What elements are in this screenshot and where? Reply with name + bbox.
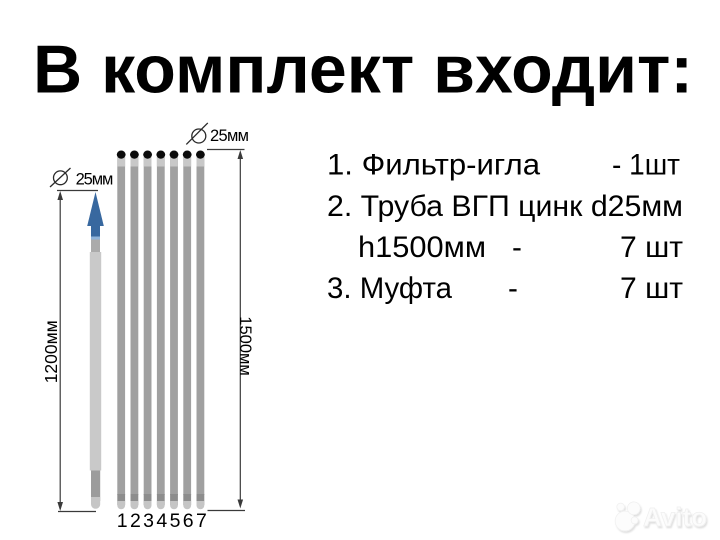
svg-text:7: 7 — [196, 510, 207, 532]
svg-text:25мм: 25мм — [210, 127, 249, 145]
svg-text:3. Муфта: 3. Муфта — [327, 272, 452, 305]
svg-text:2: 2 — [130, 510, 141, 532]
svg-text:25мм: 25мм — [76, 171, 114, 189]
svg-text:В комплект входит:: В комплект входит: — [33, 31, 693, 107]
svg-text:4: 4 — [156, 510, 167, 532]
svg-text:-: - — [508, 272, 518, 305]
svg-text:- 1шт: - 1шт — [612, 149, 680, 182]
svg-text:7 шт: 7 шт — [620, 231, 683, 264]
svg-text:7 шт: 7 шт — [620, 272, 683, 305]
svg-text:-: - — [512, 231, 522, 264]
svg-text:1: 1 — [117, 510, 128, 532]
svg-text:5: 5 — [170, 510, 181, 532]
svg-text:1. Фильтр-игла: 1. Фильтр-игла — [327, 149, 541, 182]
svg-text:Avito: Avito — [643, 502, 707, 532]
svg-text:1500мм: 1500мм — [236, 316, 254, 375]
svg-text:6: 6 — [183, 510, 194, 532]
svg-text:1200мм: 1200мм — [41, 320, 61, 383]
svg-text:h1500мм: h1500мм — [358, 231, 486, 264]
svg-text:2. Труба ВГП цинк d25мм: 2. Труба ВГП цинк d25мм — [327, 190, 683, 223]
svg-text:3: 3 — [143, 510, 154, 532]
